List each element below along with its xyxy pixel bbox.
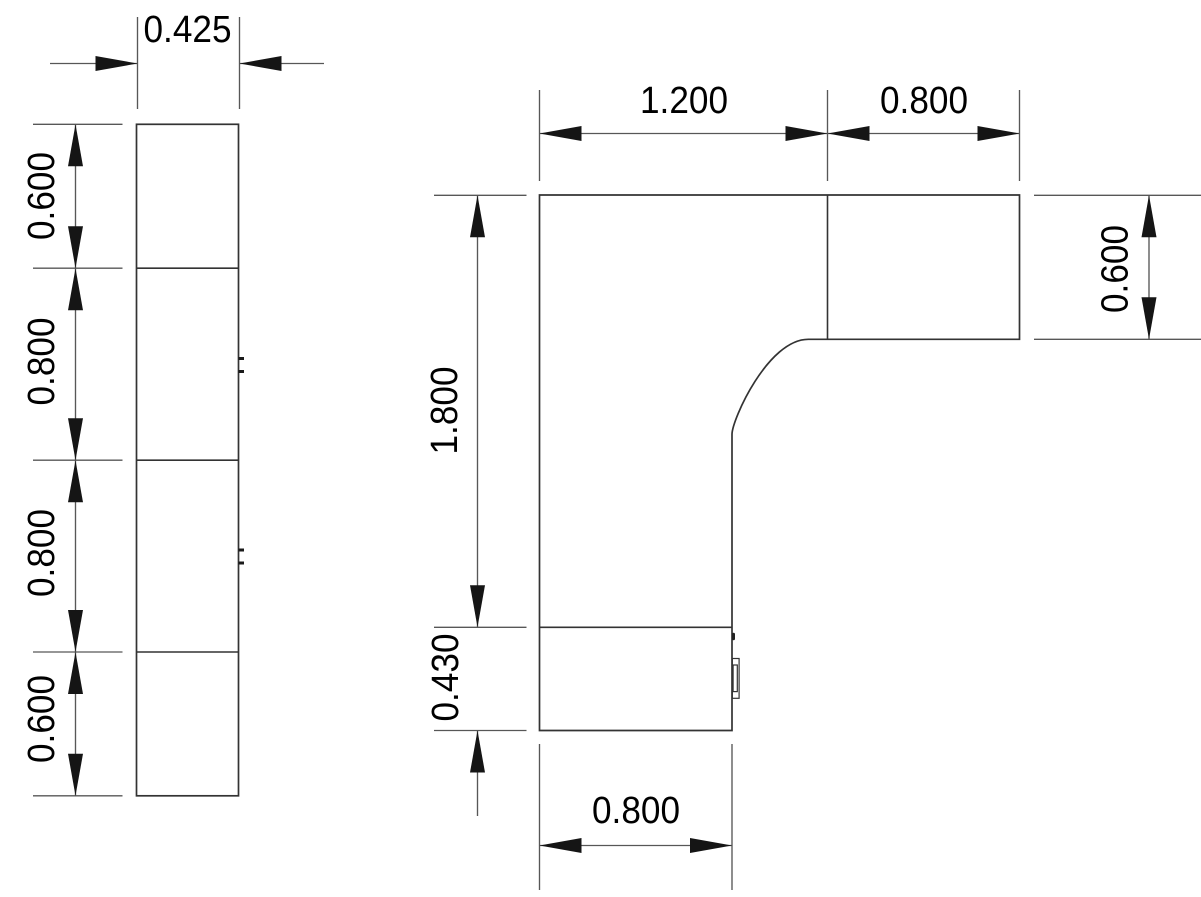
svg-text:0.800: 0.800 [880, 80, 968, 122]
svg-text:0.425: 0.425 [144, 9, 232, 51]
svg-text:0.800: 0.800 [21, 318, 63, 406]
svg-text:0.800: 0.800 [21, 509, 63, 597]
svg-text:0.600: 0.600 [21, 675, 63, 763]
svg-text:0.800: 0.800 [592, 790, 680, 832]
svg-text:1.800: 1.800 [424, 367, 466, 455]
svg-text:0.600: 0.600 [1095, 225, 1137, 313]
svg-text:1.200: 1.200 [640, 80, 728, 122]
svg-text:0.600: 0.600 [21, 152, 63, 240]
svg-text:0.430: 0.430 [425, 634, 467, 722]
